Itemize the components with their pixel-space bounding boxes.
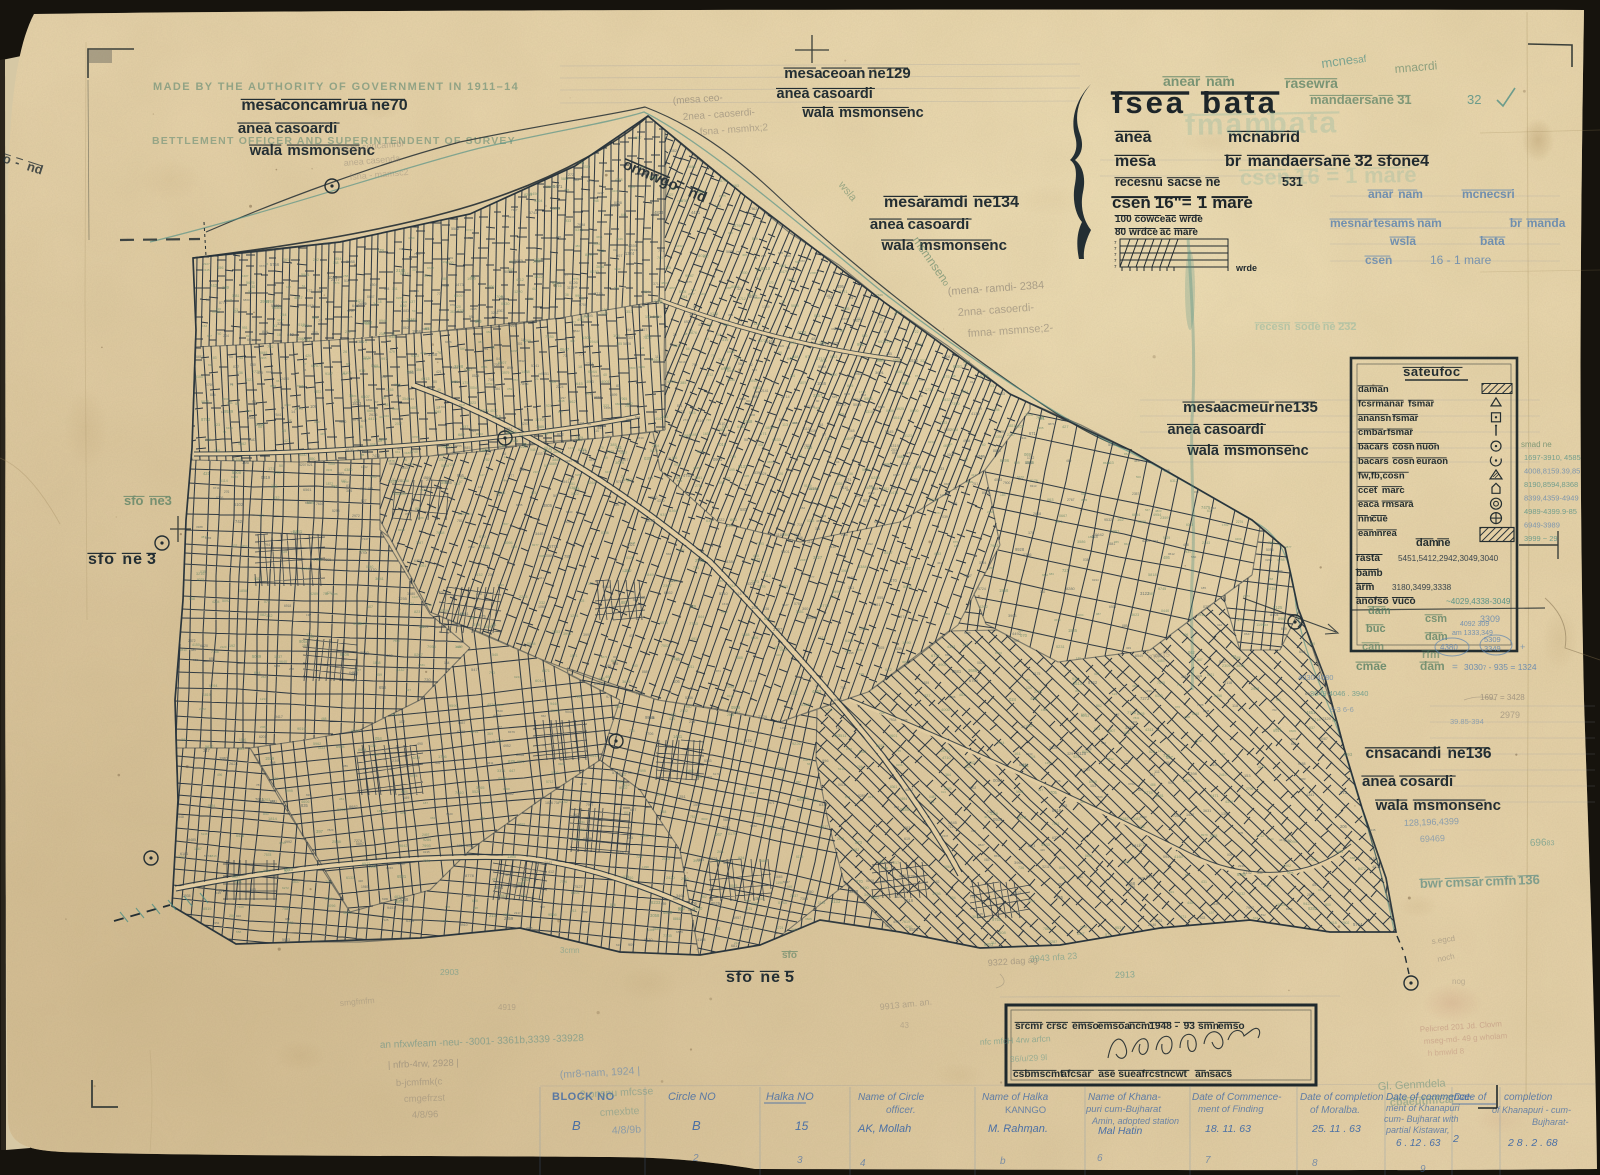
svg-text:567: 567 bbox=[1145, 508, 1150, 512]
svg-text:1635: 1635 bbox=[703, 432, 711, 436]
svg-text:mare: mare bbox=[1212, 193, 1253, 212]
svg-text:3352: 3352 bbox=[1125, 726, 1133, 730]
svg-text:9995: 9995 bbox=[260, 356, 267, 360]
svg-text:4090: 4090 bbox=[497, 583, 504, 587]
svg-text:171: 171 bbox=[268, 466, 275, 471]
svg-text:0207: 0207 bbox=[414, 652, 424, 657]
svg-text:0413: 0413 bbox=[590, 754, 598, 758]
svg-text:9: 9 bbox=[1420, 1164, 1426, 1175]
svg-text:233: 233 bbox=[1062, 804, 1068, 808]
svg-text:111: 111 bbox=[546, 571, 551, 575]
svg-text:30: 30 bbox=[436, 406, 440, 410]
svg-text:6727: 6727 bbox=[931, 653, 941, 658]
svg-text:64: 64 bbox=[627, 328, 631, 332]
svg-text:8527: 8527 bbox=[884, 550, 893, 555]
svg-text:2567: 2567 bbox=[502, 522, 509, 526]
svg-text:95: 95 bbox=[362, 302, 366, 306]
svg-text:424: 424 bbox=[669, 717, 675, 721]
svg-text:1969: 1969 bbox=[467, 276, 476, 281]
svg-text:1367: 1367 bbox=[583, 345, 590, 349]
svg-text:010: 010 bbox=[965, 765, 971, 769]
svg-text:1220: 1220 bbox=[514, 290, 522, 294]
svg-text:412: 412 bbox=[548, 870, 554, 874]
svg-text:24: 24 bbox=[641, 346, 645, 350]
svg-text:886: 886 bbox=[945, 653, 950, 657]
svg-text:950: 950 bbox=[193, 658, 198, 662]
svg-text:804: 804 bbox=[697, 775, 703, 779]
svg-text:0259: 0259 bbox=[400, 811, 407, 815]
svg-text:3706: 3706 bbox=[412, 435, 419, 439]
svg-text:8375: 8375 bbox=[646, 518, 656, 523]
svg-text:7284: 7284 bbox=[781, 533, 789, 537]
svg-text:5310: 5310 bbox=[719, 591, 728, 596]
svg-text:907: 907 bbox=[1168, 781, 1174, 785]
svg-text:+: + bbox=[1520, 642, 1525, 652]
svg-text:0231: 0231 bbox=[1056, 644, 1065, 649]
svg-text:871: 871 bbox=[677, 404, 683, 408]
svg-text:5501: 5501 bbox=[301, 273, 309, 277]
svg-text:298: 298 bbox=[989, 566, 994, 570]
svg-text:2303: 2303 bbox=[533, 470, 540, 474]
svg-text:17: 17 bbox=[565, 273, 569, 277]
svg-text:0819: 0819 bbox=[261, 475, 271, 480]
svg-text:213: 213 bbox=[819, 635, 826, 640]
svg-text:77: 77 bbox=[579, 353, 583, 357]
svg-text:710: 710 bbox=[1163, 753, 1171, 758]
svg-text:434: 434 bbox=[758, 443, 764, 447]
svg-text:6553: 6553 bbox=[594, 682, 602, 686]
svg-text:3000: 3000 bbox=[972, 915, 980, 919]
svg-text:70: 70 bbox=[600, 446, 604, 450]
svg-text:052: 052 bbox=[916, 343, 922, 347]
svg-text:674: 674 bbox=[900, 614, 907, 619]
svg-text:893: 893 bbox=[250, 888, 256, 892]
svg-text:bata: bata bbox=[1480, 234, 1505, 248]
svg-text:672: 672 bbox=[745, 738, 752, 743]
svg-text:KANNGO: KANNGO bbox=[1005, 1105, 1046, 1116]
svg-text:0327: 0327 bbox=[1203, 605, 1211, 609]
svg-text:7900: 7900 bbox=[1003, 481, 1011, 485]
svg-text:510: 510 bbox=[344, 279, 350, 283]
svg-text:8: 8 bbox=[1312, 1158, 1318, 1169]
svg-text:0787: 0787 bbox=[794, 602, 802, 606]
svg-text:408: 408 bbox=[742, 253, 747, 257]
svg-text:3114: 3114 bbox=[220, 479, 228, 483]
svg-text:5654: 5654 bbox=[241, 544, 248, 548]
svg-text:6 . 12 . 63: 6 . 12 . 63 bbox=[1396, 1138, 1441, 1149]
svg-text:9323: 9323 bbox=[411, 354, 419, 358]
svg-text:7065: 7065 bbox=[620, 397, 627, 401]
svg-text:7353: 7353 bbox=[650, 496, 658, 500]
svg-text:335: 335 bbox=[726, 523, 733, 528]
svg-text:329: 329 bbox=[1126, 646, 1131, 650]
svg-text:891: 891 bbox=[1169, 890, 1174, 894]
svg-text:249: 249 bbox=[483, 347, 488, 351]
svg-text:6232: 6232 bbox=[559, 799, 568, 804]
svg-text:862: 862 bbox=[1124, 542, 1129, 546]
svg-text:5102: 5102 bbox=[234, 502, 244, 507]
svg-text:781: 781 bbox=[457, 519, 463, 523]
svg-text:7777: 7777 bbox=[507, 474, 514, 478]
svg-text:2542: 2542 bbox=[468, 545, 475, 549]
svg-text:6201: 6201 bbox=[259, 735, 267, 739]
svg-text:7014: 7014 bbox=[829, 496, 837, 500]
svg-text:18: 18 bbox=[221, 410, 225, 414]
svg-text:206: 206 bbox=[1340, 824, 1348, 829]
svg-text:032: 032 bbox=[936, 511, 941, 515]
svg-text:728: 728 bbox=[636, 855, 642, 859]
svg-text:665: 665 bbox=[639, 165, 644, 169]
svg-text:3159: 3159 bbox=[1145, 689, 1152, 693]
svg-text:1811: 1811 bbox=[377, 809, 384, 813]
svg-text:1217: 1217 bbox=[260, 697, 267, 701]
svg-text:1892: 1892 bbox=[1259, 913, 1266, 917]
svg-text:652: 652 bbox=[541, 714, 546, 718]
svg-text:8561: 8561 bbox=[401, 602, 408, 606]
svg-text:420: 420 bbox=[305, 354, 311, 358]
svg-text:4041: 4041 bbox=[893, 416, 901, 420]
svg-text:293: 293 bbox=[439, 457, 446, 462]
svg-text:4936: 4936 bbox=[487, 703, 495, 707]
svg-text:98: 98 bbox=[684, 332, 688, 336]
svg-text:6312: 6312 bbox=[1170, 479, 1178, 483]
svg-text:636: 636 bbox=[499, 444, 505, 448]
svg-text:2431: 2431 bbox=[359, 549, 367, 553]
svg-text:999: 999 bbox=[599, 677, 605, 681]
svg-text:486: 486 bbox=[605, 664, 611, 668]
svg-text:4471: 4471 bbox=[1279, 838, 1286, 842]
svg-text:9503: 9503 bbox=[498, 777, 506, 781]
svg-text:846: 846 bbox=[262, 330, 268, 334]
svg-text:168: 168 bbox=[751, 605, 759, 610]
svg-text:345: 345 bbox=[1056, 895, 1064, 900]
svg-text:1789: 1789 bbox=[762, 305, 770, 309]
svg-text:1739: 1739 bbox=[925, 388, 933, 392]
svg-text:1511: 1511 bbox=[722, 602, 729, 606]
svg-text:301: 301 bbox=[1075, 689, 1080, 693]
svg-text:8510: 8510 bbox=[761, 266, 771, 271]
svg-text:136: 136 bbox=[237, 371, 243, 375]
svg-text:156: 156 bbox=[394, 382, 401, 387]
svg-text:1706: 1706 bbox=[645, 732, 653, 736]
svg-text:5806: 5806 bbox=[623, 342, 631, 346]
svg-text:786: 786 bbox=[323, 592, 329, 596]
svg-text:6337: 6337 bbox=[819, 802, 828, 807]
svg-text:663: 663 bbox=[1107, 460, 1114, 465]
svg-text:924: 924 bbox=[1073, 755, 1079, 759]
svg-text:3094: 3094 bbox=[1288, 839, 1298, 844]
svg-text:1622: 1622 bbox=[571, 492, 579, 496]
svg-text:4431: 4431 bbox=[706, 775, 713, 779]
svg-text:5818: 5818 bbox=[1148, 572, 1157, 577]
svg-text:of Moralba.: of Moralba. bbox=[1310, 1105, 1360, 1116]
svg-text:5874: 5874 bbox=[333, 281, 340, 285]
svg-text:2808: 2808 bbox=[943, 355, 951, 359]
svg-text:517: 517 bbox=[703, 255, 709, 259]
svg-text:492: 492 bbox=[490, 346, 496, 350]
svg-text:8399,4359-4949: 8399,4359-4949 bbox=[1524, 494, 1579, 503]
svg-text:2541: 2541 bbox=[274, 413, 282, 417]
svg-text:1995: 1995 bbox=[847, 651, 854, 655]
svg-text:645: 645 bbox=[576, 381, 583, 386]
svg-text:0992: 0992 bbox=[866, 542, 873, 546]
svg-text:4431: 4431 bbox=[691, 210, 701, 215]
svg-text:5127: 5127 bbox=[245, 378, 253, 382]
svg-text:996: 996 bbox=[1183, 633, 1189, 637]
svg-text:36: 36 bbox=[587, 421, 591, 426]
svg-text:8776: 8776 bbox=[219, 301, 227, 305]
svg-text:8692: 8692 bbox=[678, 548, 685, 552]
svg-text:1863: 1863 bbox=[219, 756, 229, 761]
svg-text:081: 081 bbox=[874, 602, 881, 607]
svg-text:4691: 4691 bbox=[596, 235, 603, 239]
svg-text:8907: 8907 bbox=[1146, 874, 1155, 879]
svg-text:4686: 4686 bbox=[759, 859, 767, 863]
svg-text:217: 217 bbox=[893, 861, 899, 865]
svg-text:182: 182 bbox=[250, 285, 256, 289]
svg-text:4989-4399.9-85: 4989-4399.9-85 bbox=[1524, 507, 1577, 516]
svg-text:0735: 0735 bbox=[846, 747, 853, 751]
svg-text:52: 52 bbox=[798, 454, 802, 458]
svg-text:anar: anar bbox=[1368, 187, 1394, 201]
svg-text:3979: 3979 bbox=[502, 371, 510, 375]
svg-text:5037: 5037 bbox=[783, 880, 790, 884]
svg-text:8778: 8778 bbox=[465, 873, 475, 878]
svg-text:5459: 5459 bbox=[451, 380, 459, 384]
svg-text:94: 94 bbox=[949, 442, 953, 446]
svg-text:9459: 9459 bbox=[530, 191, 539, 196]
svg-text:9289: 9289 bbox=[858, 794, 866, 798]
svg-text:283: 283 bbox=[419, 624, 426, 629]
svg-text:3069: 3069 bbox=[841, 569, 849, 573]
svg-text:065: 065 bbox=[849, 429, 855, 433]
svg-text:4777: 4777 bbox=[808, 575, 815, 579]
svg-text:903: 903 bbox=[579, 599, 585, 603]
svg-text:7963: 7963 bbox=[990, 544, 998, 548]
svg-text:3411: 3411 bbox=[487, 761, 494, 765]
svg-text:0637: 0637 bbox=[292, 880, 300, 884]
svg-text:31: 31 bbox=[953, 487, 957, 491]
svg-text:rasewra: rasewra bbox=[1285, 75, 1338, 91]
svg-text:439: 439 bbox=[369, 863, 377, 868]
svg-text:461: 461 bbox=[1094, 672, 1100, 676]
svg-text:3579: 3579 bbox=[673, 344, 681, 348]
svg-text:4766: 4766 bbox=[233, 457, 243, 462]
svg-text:366: 366 bbox=[819, 341, 825, 345]
svg-text:53: 53 bbox=[502, 478, 506, 482]
svg-text:565: 565 bbox=[573, 178, 579, 182]
svg-text:621: 621 bbox=[307, 463, 313, 467]
svg-text:7393: 7393 bbox=[756, 542, 764, 546]
svg-text:8520: 8520 bbox=[496, 709, 503, 713]
svg-text:54: 54 bbox=[544, 464, 548, 468]
svg-text:528: 528 bbox=[635, 415, 640, 419]
svg-text:9740: 9740 bbox=[410, 450, 418, 454]
svg-text:254: 254 bbox=[681, 295, 687, 299]
svg-text:6918: 6918 bbox=[750, 379, 757, 383]
svg-text:237: 237 bbox=[232, 544, 238, 548]
svg-text:7849: 7849 bbox=[645, 572, 654, 577]
svg-text:9750: 9750 bbox=[579, 303, 587, 307]
svg-text:1858: 1858 bbox=[999, 588, 1009, 593]
svg-text:89: 89 bbox=[857, 317, 861, 321]
svg-text:4255: 4255 bbox=[245, 409, 252, 413]
svg-text:750: 750 bbox=[840, 686, 846, 690]
svg-text:100: 100 bbox=[312, 331, 318, 335]
svg-text:9634: 9634 bbox=[589, 458, 596, 462]
svg-text:2276: 2276 bbox=[1236, 520, 1243, 524]
svg-text:469: 469 bbox=[1066, 459, 1072, 463]
svg-text:554: 554 bbox=[954, 396, 960, 400]
svg-text:8105: 8105 bbox=[571, 891, 579, 895]
svg-text:6114: 6114 bbox=[1267, 837, 1274, 841]
svg-text:154: 154 bbox=[280, 312, 287, 317]
svg-text:8087: 8087 bbox=[1320, 737, 1328, 741]
svg-text:0858: 0858 bbox=[534, 258, 542, 262]
svg-text:2017: 2017 bbox=[395, 422, 403, 426]
svg-text:1291: 1291 bbox=[1076, 875, 1083, 879]
svg-text:1703: 1703 bbox=[439, 405, 446, 409]
svg-text:971: 971 bbox=[606, 695, 612, 699]
svg-text:081: 081 bbox=[365, 321, 372, 326]
svg-text:628: 628 bbox=[812, 798, 819, 803]
svg-text:8642: 8642 bbox=[399, 844, 407, 848]
svg-text:643: 643 bbox=[540, 905, 545, 909]
svg-text:472: 472 bbox=[424, 327, 430, 331]
svg-text:4647: 4647 bbox=[1134, 459, 1141, 463]
svg-text:67: 67 bbox=[375, 400, 379, 404]
svg-text:2602: 2602 bbox=[1342, 921, 1350, 925]
svg-text:9282: 9282 bbox=[1308, 906, 1318, 911]
svg-text:1527: 1527 bbox=[640, 328, 647, 332]
svg-text:4981: 4981 bbox=[447, 256, 454, 260]
svg-text:3560: 3560 bbox=[756, 814, 764, 818]
svg-text:2410: 2410 bbox=[1219, 773, 1227, 777]
svg-text:5963: 5963 bbox=[282, 938, 290, 942]
svg-text:0330: 0330 bbox=[501, 302, 509, 306]
svg-text:2378: 2378 bbox=[580, 782, 587, 786]
svg-text:8533: 8533 bbox=[994, 854, 1001, 858]
svg-text:8519: 8519 bbox=[203, 907, 211, 911]
svg-text:5661: 5661 bbox=[260, 351, 268, 355]
svg-text:968: 968 bbox=[389, 462, 395, 466]
svg-text:961: 961 bbox=[539, 576, 544, 580]
svg-text:4/8/96: 4/8/96 bbox=[412, 1109, 439, 1121]
svg-text:3999 ~ 29: 3999 ~ 29 bbox=[1524, 534, 1558, 543]
svg-text:426: 426 bbox=[1040, 848, 1045, 852]
svg-text:479: 479 bbox=[389, 350, 395, 354]
svg-text:0718: 0718 bbox=[842, 317, 849, 321]
svg-text:5896: 5896 bbox=[807, 615, 817, 620]
svg-text:5974: 5974 bbox=[204, 854, 211, 858]
svg-text:5925: 5925 bbox=[896, 407, 904, 411]
svg-text:6521: 6521 bbox=[552, 280, 561, 285]
svg-text:197: 197 bbox=[306, 613, 311, 617]
svg-text:910: 910 bbox=[216, 307, 221, 311]
svg-text:709: 709 bbox=[442, 283, 449, 288]
svg-text:639: 639 bbox=[270, 799, 275, 803]
svg-text:223: 223 bbox=[678, 908, 684, 912]
svg-text:505: 505 bbox=[874, 520, 879, 524]
svg-text:1537: 1537 bbox=[942, 834, 949, 838]
svg-text:18: 18 bbox=[277, 333, 281, 337]
svg-text:4426: 4426 bbox=[616, 237, 623, 241]
svg-text:9851: 9851 bbox=[541, 372, 549, 376]
svg-text:6520: 6520 bbox=[446, 261, 454, 265]
svg-text:1488: 1488 bbox=[521, 369, 530, 374]
svg-text:7247: 7247 bbox=[362, 537, 369, 541]
svg-text:273: 273 bbox=[683, 418, 688, 422]
svg-text:864: 864 bbox=[1124, 452, 1129, 456]
svg-text:8415: 8415 bbox=[492, 414, 502, 419]
svg-text:799: 799 bbox=[325, 880, 331, 884]
svg-text:1888: 1888 bbox=[735, 656, 743, 660]
svg-text:436: 436 bbox=[1139, 825, 1145, 829]
svg-text:859: 859 bbox=[1185, 873, 1190, 877]
svg-text:6860: 6860 bbox=[243, 298, 250, 302]
svg-text:9355: 9355 bbox=[455, 444, 462, 448]
svg-text:8682: 8682 bbox=[349, 804, 358, 809]
svg-text:3349: 3349 bbox=[1484, 644, 1501, 653]
svg-text:32: 32 bbox=[349, 394, 353, 398]
svg-text:715: 715 bbox=[951, 502, 957, 506]
svg-text:0190: 0190 bbox=[301, 567, 309, 571]
svg-text:6891: 6891 bbox=[953, 364, 963, 369]
svg-text:7956: 7956 bbox=[427, 644, 437, 649]
svg-text:38: 38 bbox=[382, 396, 386, 400]
svg-text:526: 526 bbox=[891, 486, 897, 490]
svg-text:0267: 0267 bbox=[902, 461, 912, 466]
svg-text:3178: 3178 bbox=[832, 341, 839, 345]
svg-text:7868: 7868 bbox=[436, 531, 444, 535]
svg-text:0778: 0778 bbox=[353, 418, 360, 422]
svg-text:899: 899 bbox=[507, 366, 513, 370]
svg-text:2224: 2224 bbox=[556, 385, 564, 389]
svg-text:2 8 . 2 . 68: 2 8 . 2 . 68 bbox=[1507, 1137, 1558, 1149]
svg-text:400: 400 bbox=[570, 339, 575, 343]
svg-text:553: 553 bbox=[737, 741, 742, 745]
svg-text:9223: 9223 bbox=[231, 475, 238, 479]
svg-text:3680: 3680 bbox=[1181, 675, 1188, 679]
svg-text:2190: 2190 bbox=[987, 510, 994, 514]
svg-text:0688: 0688 bbox=[558, 762, 565, 766]
svg-text:137: 137 bbox=[409, 300, 415, 304]
svg-text:666: 666 bbox=[488, 591, 493, 595]
svg-text:5298: 5298 bbox=[332, 509, 340, 513]
svg-text:9417: 9417 bbox=[275, 715, 283, 719]
svg-text:7619: 7619 bbox=[902, 920, 910, 924]
svg-text:0179: 0179 bbox=[728, 832, 736, 836]
svg-text:1312: 1312 bbox=[361, 465, 368, 469]
svg-text:68: 68 bbox=[840, 329, 844, 333]
svg-text:45: 45 bbox=[964, 363, 968, 367]
svg-text:041: 041 bbox=[235, 879, 243, 884]
svg-text:6549: 6549 bbox=[1135, 654, 1143, 658]
svg-text:059: 059 bbox=[661, 902, 667, 906]
svg-text:4879: 4879 bbox=[799, 381, 807, 385]
svg-text:6694: 6694 bbox=[1132, 513, 1140, 517]
svg-text:7410: 7410 bbox=[840, 486, 848, 490]
svg-text:7882: 7882 bbox=[1043, 927, 1051, 931]
svg-text:0581: 0581 bbox=[952, 669, 962, 674]
svg-text:548: 548 bbox=[178, 815, 184, 819]
svg-text:427: 427 bbox=[1195, 676, 1200, 680]
svg-text:57: 57 bbox=[459, 480, 463, 484]
svg-text:236: 236 bbox=[492, 877, 497, 881]
svg-text:519: 519 bbox=[424, 274, 430, 278]
svg-text:251: 251 bbox=[679, 794, 686, 799]
svg-text:683: 683 bbox=[1049, 572, 1054, 576]
